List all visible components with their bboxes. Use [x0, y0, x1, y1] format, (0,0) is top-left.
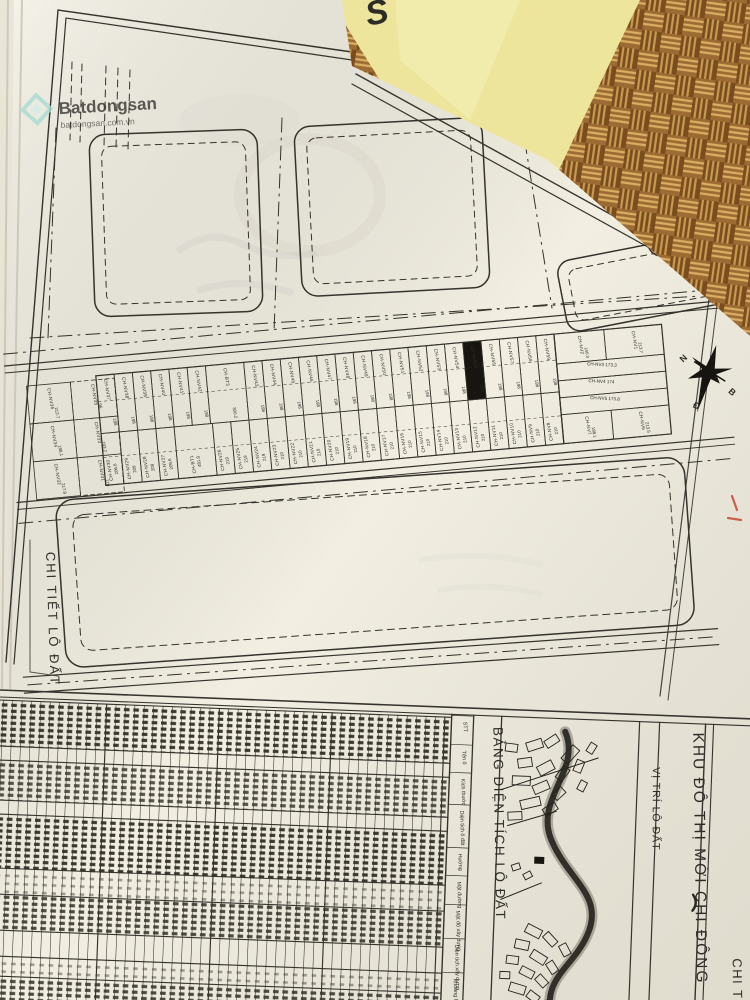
- site-plan-photo: S: [0, 0, 750, 1000]
- table-column-header: Diện tích ô đất: [458, 811, 465, 846]
- table-title: BẢNG DIỆN TÍCH LÔ ĐẤT: [490, 727, 508, 920]
- table-column-header: Hướng: [456, 854, 463, 871]
- table-column-header: Tên ô: [460, 751, 466, 765]
- table-column-header: Khoảng lùi Trước: [452, 978, 459, 1000]
- project-title: KHU ĐÔ THỊ MỚI CHI ĐÔNG: [689, 732, 710, 984]
- corner-caption: CHI TIẾT: [730, 958, 746, 1000]
- table-column-header: STT: [462, 722, 468, 733]
- table-column-header: Kích thước: [459, 779, 466, 806]
- inset-caption: VỊ TRÍ LÔ ĐẤT: [650, 767, 663, 850]
- photo-canvas: S: [0, 0, 750, 1000]
- inset-highlight-block: [534, 857, 544, 864]
